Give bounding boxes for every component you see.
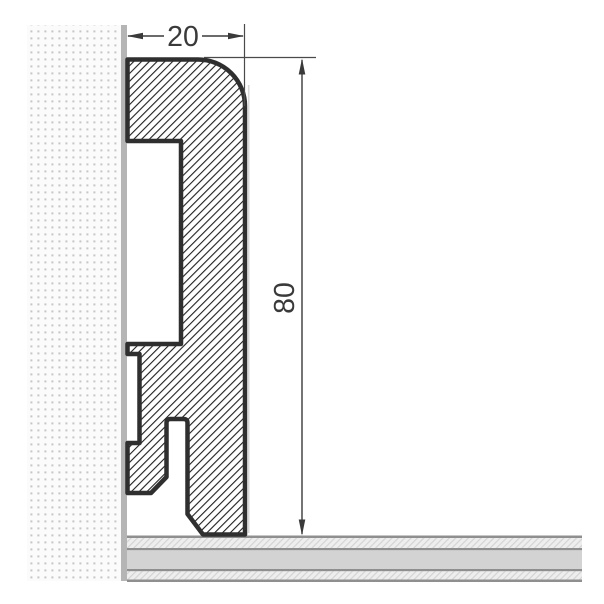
width-dimension-label: 20 (167, 21, 199, 53)
width-dim-arrow-left-icon (127, 33, 143, 40)
floor-top-screed (127, 538, 582, 548)
floor-border-line (127, 569, 582, 571)
wall (27, 25, 127, 581)
skirting-cross-section-drawing: 20 80 (0, 0, 604, 604)
wall-stipple-area (27, 25, 121, 581)
floor-border-line (127, 548, 582, 550)
floor-border-line (127, 536, 582, 539)
height-dim-arrow-down-icon (299, 520, 306, 536)
floor-bottom-screed (127, 571, 582, 579)
floor-border-line (127, 580, 582, 583)
skirting-profile (128, 60, 249, 535)
skirting-profile-outline (128, 60, 246, 535)
floor-core (127, 550, 582, 569)
height-dimension-label: 80 (269, 282, 301, 314)
width-dim-arrow-right-icon (228, 33, 244, 40)
height-dim-arrow-up-icon (299, 59, 306, 75)
floor (127, 536, 582, 583)
drawing-canvas: 20 80 (0, 0, 604, 604)
